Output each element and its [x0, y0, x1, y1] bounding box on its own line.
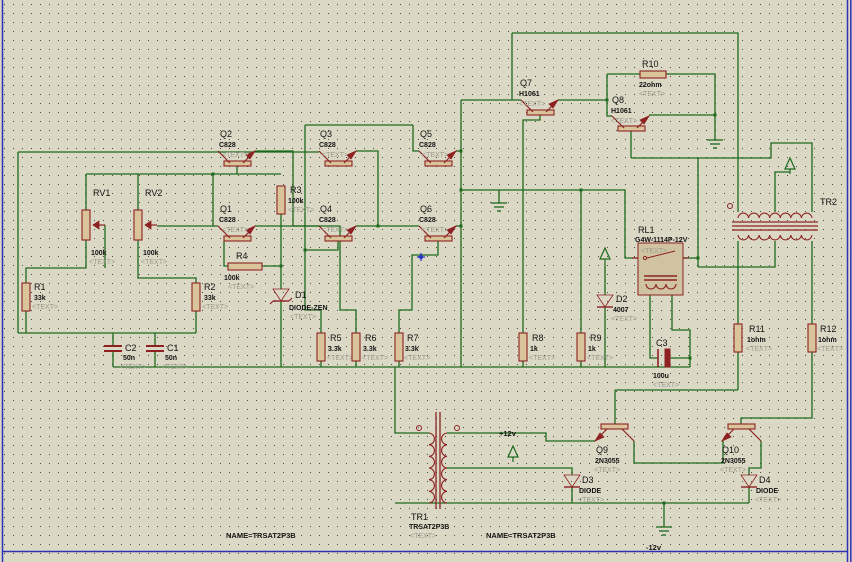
wire-junction	[280, 265, 283, 268]
component-C1-value-label: 50n	[165, 355, 177, 362]
part-body	[277, 186, 285, 214]
part-body	[577, 333, 585, 361]
component-R1-ref-label: R1	[34, 282, 46, 292]
annotation-text[interactable]: +12v	[499, 429, 517, 438]
component-Q5-ref-label: Q5	[420, 129, 432, 139]
component-Q5-extra-label: <TEXT>	[422, 152, 448, 159]
annotation-text[interactable]: NAME=TRSAT2P3B	[486, 531, 556, 540]
component-R3-extra-label: <TEXT>	[288, 207, 314, 214]
part-body	[601, 424, 628, 429]
component-Q2-value-label: C828	[219, 142, 236, 149]
component-Q6-ref-label: Q6	[420, 204, 432, 214]
component-R6-extra-label: <TEXT>	[362, 355, 388, 362]
component-R11-value-label: 1ohm	[747, 337, 766, 344]
part-body	[808, 324, 816, 352]
component-Q10-value-label: 2N3055	[721, 458, 746, 465]
part-body	[317, 333, 325, 361]
component-R5-ref-label: R5	[330, 333, 342, 343]
part-body	[134, 210, 142, 240]
component-RV1-ref-label: RV1	[93, 188, 110, 198]
component-Q1-ref-label: Q1	[220, 204, 232, 214]
schematic-editor-sheet: R133k<TEXT>R233k<TEXT>R3100k<TEXT>R4100k…	[0, 0, 852, 562]
component-R7-ref-label: R7	[407, 333, 419, 343]
annotation-text[interactable]: NAME=TRSAT2P3B	[226, 531, 296, 540]
component-R8-extra-label: <TEXT>	[529, 355, 555, 362]
part-body	[734, 324, 742, 352]
component-C3-ref-label: C3	[656, 338, 668, 348]
component-R6-ref-label: R6	[365, 333, 377, 343]
component-RL1-ref-label: RL1	[638, 225, 655, 235]
component-R10-value-label: 22ohm	[639, 82, 662, 89]
component-D1-ref-label: D1	[295, 290, 307, 300]
component-Q8-value-label: H1061	[611, 108, 632, 115]
component-C2-ref-label: C2	[125, 343, 137, 353]
component-C2-value-label: 50n	[123, 355, 135, 362]
part-shape	[420, 256, 423, 259]
part-body	[519, 333, 527, 361]
annotation-text[interactable]: -12v	[646, 543, 662, 552]
component-TR2-ref-label: TR2	[820, 197, 837, 207]
wire-junction	[377, 225, 380, 228]
component-R4-value-label: 100k	[224, 275, 240, 282]
component-C2-extra-label: <TEXT>	[120, 364, 146, 371]
component-Q4-value-label: C828	[319, 217, 336, 224]
component-Q5-value-label: C828	[419, 142, 436, 149]
component-Q10-extra-label: <TEXT>	[720, 467, 746, 474]
component-R10-ref-label: R10	[642, 59, 659, 69]
part-body	[395, 333, 403, 361]
component-R4-extra-label: <TEXT>	[228, 284, 254, 291]
wire-junction	[460, 150, 463, 153]
wire-junction	[606, 99, 609, 102]
part-body	[82, 210, 90, 240]
component-Q7-ref-label: Q7	[520, 78, 532, 88]
component-D4-ref-label: D4	[759, 475, 771, 485]
component-R7-value-label: 3.3k	[405, 346, 419, 353]
component-R2-value-label: 33k	[204, 295, 216, 302]
component-R9-ref-label: R9	[590, 333, 602, 343]
component-Q3-value-label: C828	[319, 142, 336, 149]
component-Q9-value-label: 2N3055	[595, 458, 620, 465]
component-C1-ref-label: C1	[167, 343, 179, 353]
component-Q7-value-label: H1061	[519, 91, 540, 98]
component-R12-extra-label: <TEXT>	[817, 346, 843, 353]
component-R3-value-label: 100k	[288, 198, 304, 205]
component-R1-extra-label: <TEXT>	[32, 304, 58, 311]
component-D2-ref-label: D2	[616, 294, 628, 304]
component-TR1-extra-label: <TEXT>	[410, 533, 436, 540]
component-Q1-value-label: C828	[219, 217, 236, 224]
component-R11-ref-label: R11	[749, 324, 765, 334]
component-D1-extra-label: <TEXT>	[290, 314, 316, 321]
component-D2-value-label: 4007	[613, 307, 629, 314]
component-D3-ref-label: D3	[582, 475, 594, 485]
part-body	[640, 71, 666, 78]
component-Q3-extra-label: <TEXT>	[322, 152, 348, 159]
component-R11-extra-label: <TEXT>	[746, 346, 772, 353]
component-TR1-value-label: TRSAT2P3B	[409, 524, 449, 531]
wire-junction	[663, 502, 666, 505]
component-Q4-extra-label: <TEXT>	[322, 227, 348, 234]
component-Q6-value-label: C828	[419, 217, 436, 224]
component-R4-ref-label: R4	[236, 251, 248, 261]
component-Q7-extra-label: <TEXT>	[519, 101, 545, 108]
component-D4-extra-label: <TEXT>	[755, 497, 781, 504]
component-D3-extra-label: <TEXT>	[578, 497, 604, 504]
component-R6-value-label: 3.3k	[363, 346, 377, 353]
component-C3-extra-label: <TEXT>	[653, 382, 679, 389]
component-TR1-ref-label: TR1	[411, 512, 428, 522]
component-Q1-extra-label: <TEXT>	[222, 227, 248, 234]
component-R9-extra-label: <TEXT>	[587, 355, 613, 362]
wire-junction	[304, 249, 307, 252]
component-D3-value-label: DIODE	[579, 488, 602, 495]
part-shape	[665, 349, 670, 367]
component-RV2-ref-label: RV2	[145, 188, 162, 198]
component-Q3-ref-label: Q3	[320, 129, 332, 139]
component-RL1-value-label: G4W-1114P-12V	[635, 237, 688, 244]
part-body	[22, 283, 30, 311]
wire-junction	[697, 257, 700, 260]
component-R7-extra-label: <TEXT>	[404, 355, 430, 362]
component-R12-value-label: 1ohm	[818, 337, 837, 344]
component-Q9-ref-label: Q9	[596, 445, 608, 455]
component-Q8-extra-label: <TEXT>	[611, 118, 637, 125]
component-Q4-ref-label: Q4	[320, 204, 332, 214]
wire-junction	[460, 225, 463, 228]
component-D2-extra-label: <TEXT>	[611, 316, 637, 323]
component-R8-ref-label: R8	[532, 333, 544, 343]
wire-junction	[212, 173, 215, 176]
wire-junction	[460, 189, 463, 192]
part-body	[352, 333, 360, 361]
grid-background	[0, 0, 852, 562]
component-RV1-value-label: 100k	[91, 250, 107, 257]
component-C1-extra-label: <TEXT>	[162, 364, 188, 371]
component-Q2-ref-label: Q2	[220, 129, 232, 139]
component-R5-extra-label: <TEXT>	[327, 355, 353, 362]
component-R9-value-label: 1k	[588, 346, 596, 353]
component-R3-ref-label: R3	[290, 185, 302, 195]
component-R10-extra-label: <TEXT>	[639, 91, 665, 98]
component-R2-ref-label: R2	[204, 282, 216, 292]
component-RV2-value-label: 100k	[143, 250, 159, 257]
part-body	[728, 424, 755, 429]
component-Q10-ref-label: Q10	[722, 445, 739, 455]
part-body	[228, 263, 262, 270]
schematic-canvas[interactable]: R133k<TEXT>R233k<TEXT>R3100k<TEXT>R4100k…	[0, 0, 852, 562]
component-D4-value-label: DIODE	[756, 488, 779, 495]
component-RV1-extra-label: <TEXT>	[89, 259, 115, 266]
component-Q8-ref-label: Q8	[612, 95, 624, 105]
component-RL1-extra-label: <TEXT>	[641, 248, 667, 255]
wire-junction	[689, 357, 692, 360]
component-R2-extra-label: <TEXT>	[202, 304, 228, 311]
component-C3-value-label: 100u	[653, 373, 669, 380]
component-R1-value-label: 33k	[34, 295, 46, 302]
part-body	[192, 283, 200, 311]
component-D1-value-label: DIODE-ZEN	[289, 305, 328, 312]
wire-junction	[580, 189, 583, 192]
component-Q9-extra-label: <TEXT>	[594, 467, 620, 474]
component-R5-value-label: 3.3k	[328, 346, 342, 353]
component-RV2-extra-label: <TEXT>	[141, 259, 167, 266]
component-R8-value-label: 1k	[530, 346, 538, 353]
wire-junction	[714, 114, 717, 117]
component-Q6-extra-label: <TEXT>	[422, 227, 448, 234]
component-R12-ref-label: R12	[820, 324, 837, 334]
component-Q2-extra-label: <TEXT>	[222, 152, 248, 159]
